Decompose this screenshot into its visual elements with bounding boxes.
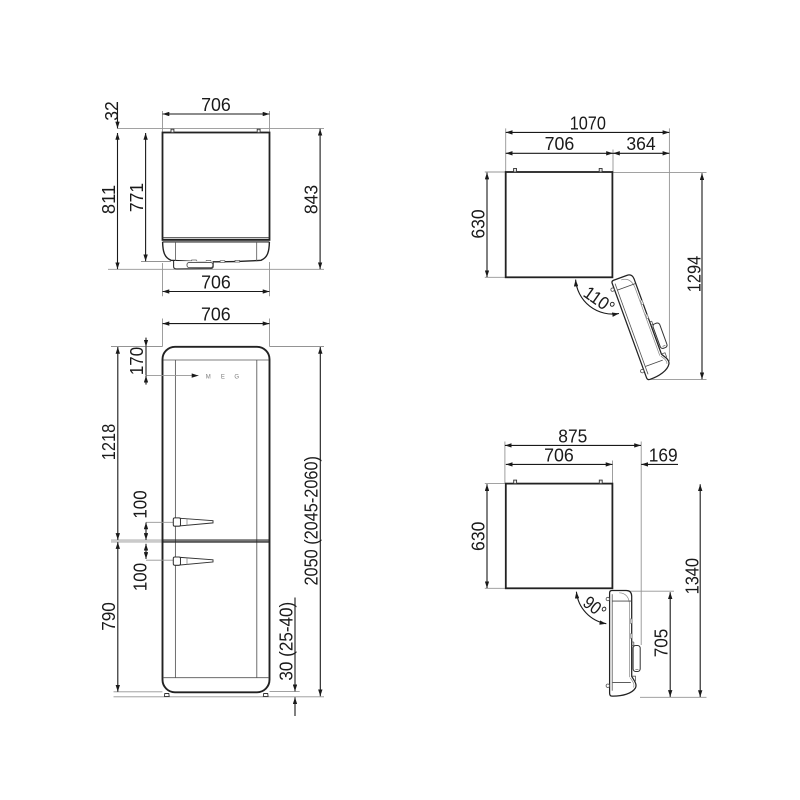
svg-text:706: 706: [201, 95, 231, 115]
svg-text:100: 100: [131, 490, 151, 518]
svg-text:843: 843: [301, 185, 321, 214]
svg-text:705: 705: [652, 629, 672, 658]
svg-text:630: 630: [468, 209, 488, 238]
svg-text:100: 100: [131, 563, 151, 591]
svg-text:170: 170: [127, 347, 147, 375]
svg-text:364: 364: [626, 134, 655, 154]
svg-text:790: 790: [99, 602, 119, 631]
svg-text:706: 706: [201, 272, 231, 292]
svg-text:1218: 1218: [99, 424, 119, 460]
svg-text:32: 32: [102, 101, 122, 121]
svg-text:771: 771: [127, 183, 147, 212]
svg-text:169: 169: [649, 445, 678, 465]
svg-text:G: G: [234, 374, 239, 380]
svg-text:2050 (2045-2060): 2050 (2045-2060): [302, 456, 322, 586]
svg-text:706: 706: [544, 445, 574, 465]
svg-text:706: 706: [201, 305, 231, 325]
svg-text:706: 706: [545, 134, 575, 154]
svg-text:1340: 1340: [683, 558, 703, 594]
svg-text:630: 630: [468, 522, 488, 551]
svg-text:30 (25-40): 30 (25-40): [276, 602, 296, 681]
svg-text:1070: 1070: [570, 113, 606, 133]
svg-text:M: M: [206, 374, 211, 380]
svg-text:811: 811: [99, 185, 119, 214]
svg-text:1294: 1294: [684, 256, 704, 292]
svg-text:E: E: [221, 374, 225, 380]
svg-text:875: 875: [558, 427, 587, 447]
